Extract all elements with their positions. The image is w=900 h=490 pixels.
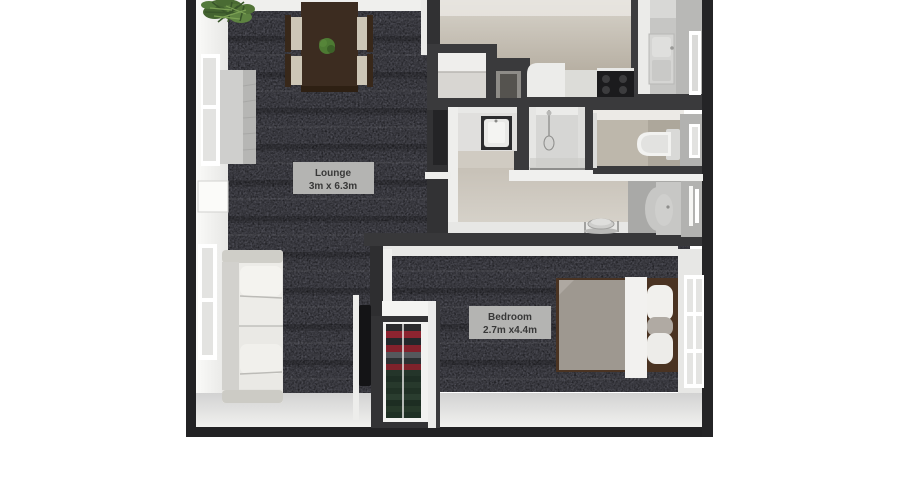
svg-text:3m x 6.3m: 3m x 6.3m <box>309 181 357 192</box>
svg-text:Lounge: Lounge <box>315 168 352 179</box>
svg-text:Bedroom: Bedroom <box>488 312 532 323</box>
svg-text:2.7m x4.4m: 2.7m x4.4m <box>483 325 537 336</box>
